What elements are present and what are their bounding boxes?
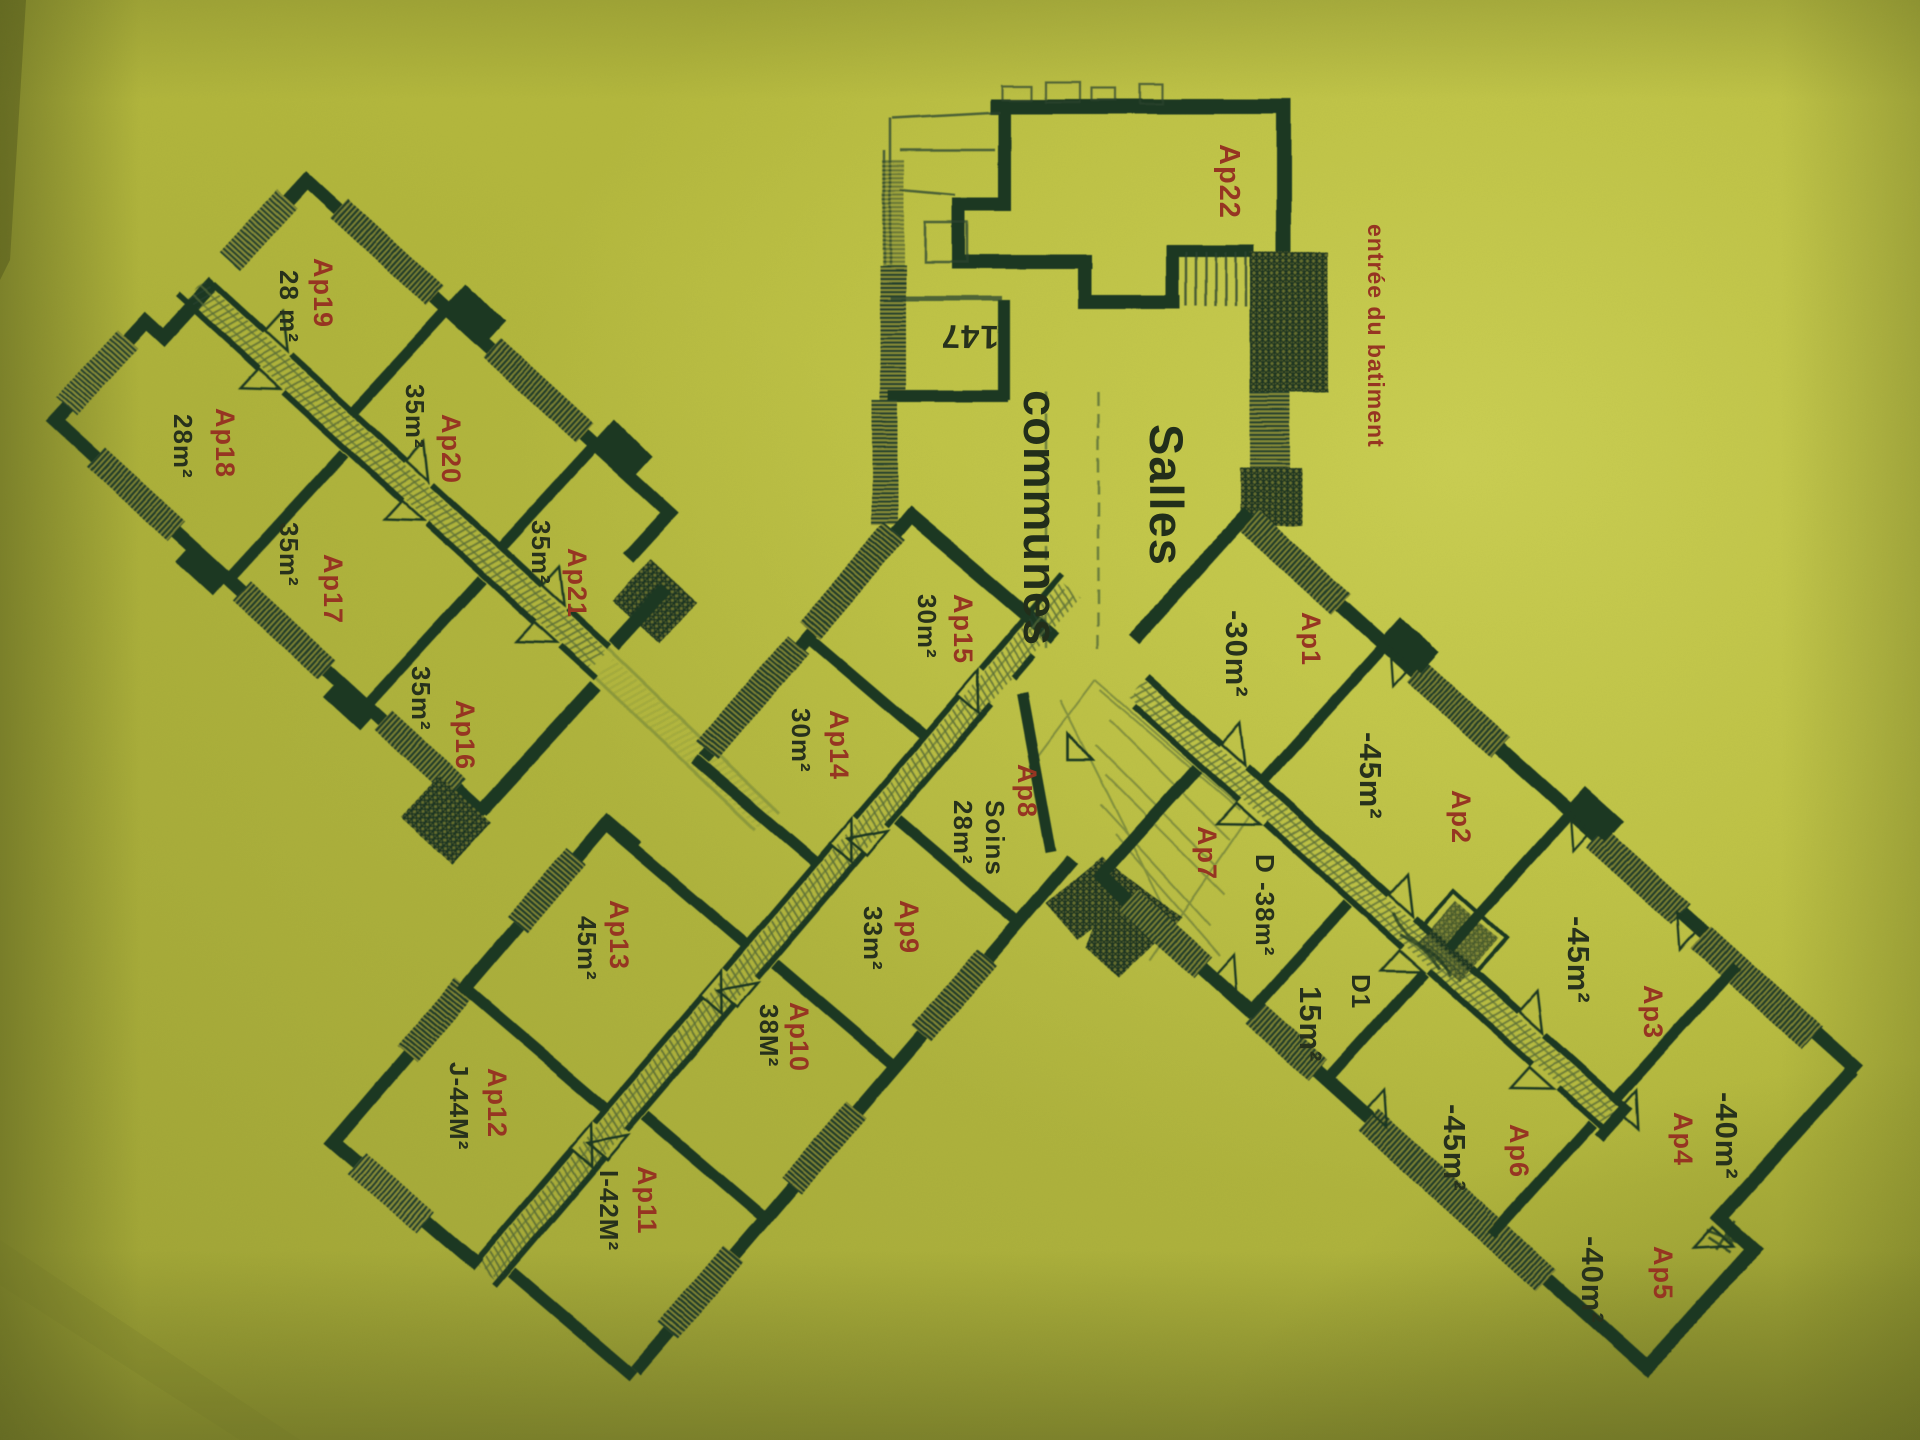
svg-text:Ap14: Ap14 [824, 710, 854, 780]
svg-text:35m²: 35m² [406, 666, 436, 731]
svg-text:Ap3: Ap3 [1638, 985, 1668, 1039]
svg-text:Ap21: Ap21 [562, 548, 592, 618]
svg-text:communes: communes [1014, 390, 1067, 646]
svg-text:Ap13: Ap13 [604, 900, 634, 970]
svg-text:Salles: Salles [1140, 424, 1193, 566]
svg-text:Ap12: Ap12 [482, 1068, 512, 1138]
svg-text:28 m²: 28 m² [274, 270, 304, 343]
svg-text:Ap16: Ap16 [450, 700, 480, 770]
svg-text:33m²: 33m² [858, 906, 888, 971]
svg-text:-45m²: -45m² [1437, 1104, 1472, 1192]
svg-text:35m²: 35m² [526, 520, 556, 585]
svg-text:I-42M²: I-42M² [594, 1170, 624, 1251]
svg-text:Ap19: Ap19 [308, 258, 338, 328]
svg-text:Ap10: Ap10 [784, 1002, 814, 1072]
svg-text:-45m²: -45m² [1561, 916, 1596, 1004]
svg-text:38M²: 38M² [754, 1004, 784, 1067]
svg-text:Ap7: Ap7 [1192, 826, 1222, 880]
svg-text:-40m²: -40m² [1709, 1092, 1744, 1180]
svg-text:Ap4: Ap4 [1668, 1112, 1698, 1166]
svg-text:Ap11: Ap11 [632, 1166, 662, 1235]
svg-text:Ap15: Ap15 [948, 594, 978, 664]
svg-text:Ap17: Ap17 [318, 554, 348, 624]
svg-text:Ap22: Ap22 [1213, 144, 1245, 219]
svg-text:entrée du batiment: entrée du batiment [1363, 224, 1389, 448]
svg-text:J-44M²: J-44M² [444, 1062, 474, 1150]
svg-text:Ap18: Ap18 [210, 408, 240, 478]
svg-text:30m²: 30m² [912, 594, 942, 659]
svg-text:35m²: 35m² [400, 384, 430, 449]
svg-text:Soins: Soins [980, 800, 1010, 876]
svg-text:D -38m²: D -38m² [1250, 854, 1280, 956]
svg-text:-30m²: -30m² [1219, 610, 1254, 698]
svg-text:Ap9: Ap9 [894, 900, 924, 954]
svg-text:28m²: 28m² [948, 800, 978, 865]
svg-text:45m²: 45m² [572, 916, 602, 981]
svg-text:-40m²: -40m² [1575, 1236, 1610, 1324]
svg-text:-45m²: -45m² [1353, 732, 1388, 820]
svg-text:147: 147 [940, 318, 999, 356]
svg-text:35m²: 35m² [274, 522, 304, 587]
svg-text:Ap8: Ap8 [1012, 764, 1042, 818]
svg-text:15m²: 15m² [1293, 986, 1328, 1062]
svg-text:Ap5: Ap5 [1648, 1246, 1678, 1300]
svg-text:D1: D1 [1346, 974, 1376, 1009]
svg-text:30m²: 30m² [786, 708, 816, 773]
svg-text:Ap6: Ap6 [1504, 1124, 1534, 1178]
svg-text:Ap1: Ap1 [1296, 612, 1326, 666]
svg-text:Ap2: Ap2 [1446, 790, 1476, 844]
svg-text:Ap20: Ap20 [436, 414, 466, 484]
svg-text:28m²: 28m² [168, 414, 198, 479]
